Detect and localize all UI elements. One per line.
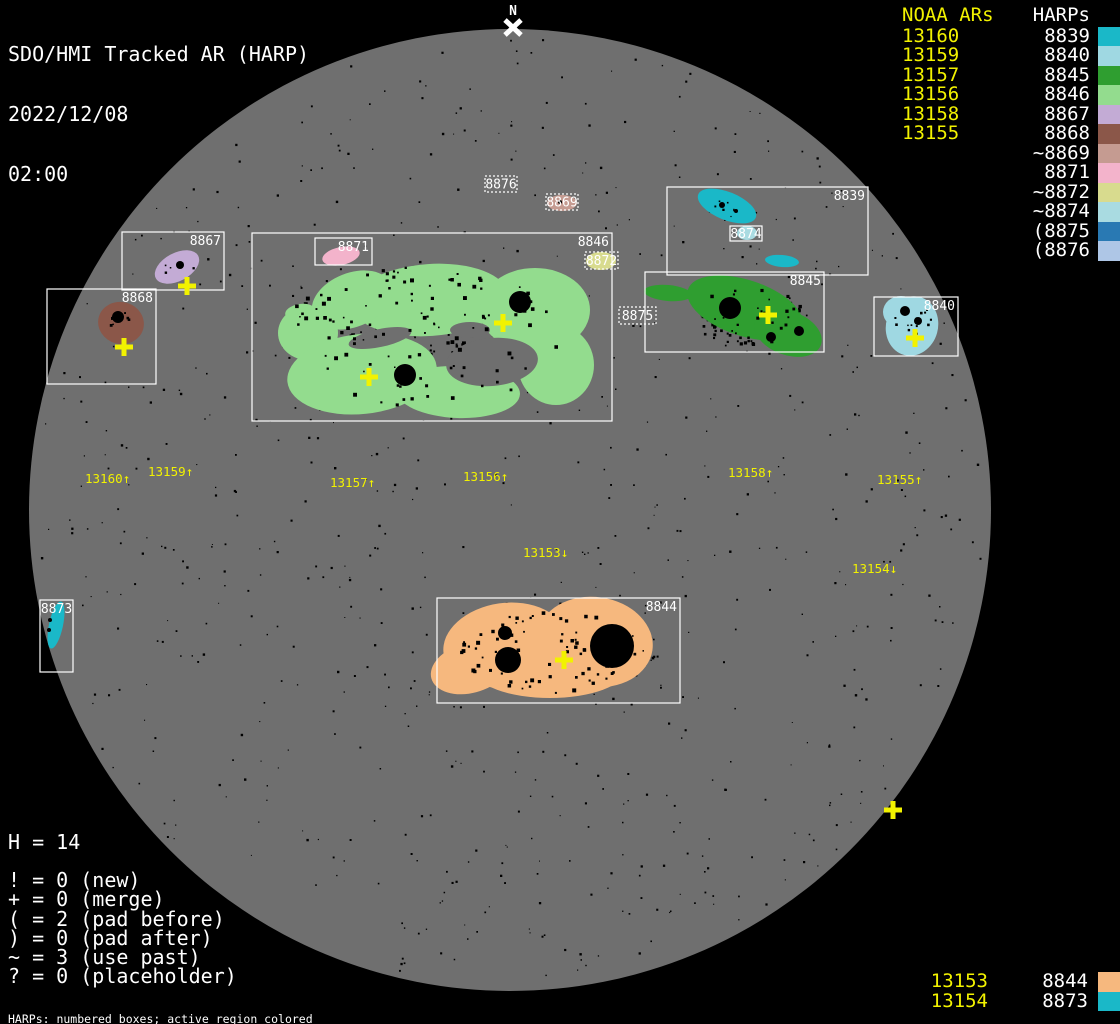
- harp-tag-label: 8872: [586, 254, 617, 269]
- footnote-block: HARPs: numbered boxes; active region col…: [8, 988, 410, 1024]
- legend-harp-number: 8868: [1000, 124, 1090, 144]
- legend-color-swatch: [1098, 27, 1120, 47]
- noaa-number-label: 13157↑: [330, 475, 375, 490]
- stats-line: ? = 0 (placeholder): [8, 967, 237, 986]
- legend-row-8868: 131558868: [900, 124, 1120, 144]
- legend-color-swatch: [1098, 183, 1120, 203]
- legend-noaa-number: 13156: [900, 85, 1000, 105]
- harp-box-label: 8844: [646, 600, 677, 615]
- north-label: N: [509, 4, 517, 19]
- harp-tag-label: 8875: [622, 309, 653, 324]
- harp-count-label: H = 14: [8, 830, 237, 854]
- north-marker: N: [505, 4, 521, 35]
- stats-lines: ! = 0 (new)+ = 0 (merge)( = 2 (pad befor…: [8, 871, 237, 987]
- legend-color-swatch: [1098, 972, 1120, 992]
- noaa-number-label: 13160↑: [85, 471, 130, 486]
- solar-harp-tracker-view: 8839884088448845884688678868887188738874…: [0, 0, 1120, 1024]
- legend-color-swatch: [1098, 202, 1120, 222]
- date-label: 2022/12/08: [8, 104, 309, 124]
- title-block: SDO/HMI Tracked AR (HARP) 2022/12/08 02:…: [8, 4, 309, 224]
- legend-noaa-number: 13154: [900, 992, 988, 1012]
- harp-tag-label: 8876: [485, 178, 516, 193]
- equator-legend: 131538844131548873: [900, 972, 1120, 1011]
- legend-rows: 1316088391315988401315788451315688461315…: [900, 27, 1120, 261]
- legend-color-swatch: [1098, 105, 1120, 125]
- harp-box-label: 8845: [790, 274, 821, 289]
- footnote-harps: HARPs: numbered boxes; active region col…: [8, 1013, 410, 1024]
- harp-tag-8876: 8876: [485, 176, 517, 193]
- legend-harp-number: 8840: [1000, 46, 1090, 66]
- noaa-number-label: 13158↑: [728, 465, 773, 480]
- legend-color-swatch: [1098, 124, 1120, 144]
- legend-noaa-number: 13153: [900, 972, 988, 992]
- legend-harp-number: 8871: [1000, 163, 1090, 183]
- harp-box-label: 8867: [190, 234, 221, 249]
- legend-color-swatch: [1098, 66, 1120, 86]
- legend-harp-number: 8873: [988, 992, 1088, 1012]
- legend-noaa-number: 13159: [900, 46, 1000, 66]
- legend-header-row: NOAA ARs HARPs: [900, 6, 1120, 26]
- harp-box-label: 8871: [338, 240, 369, 255]
- harp-tag-8872: 8872: [585, 252, 618, 269]
- legend-color-swatch: [1098, 241, 1120, 261]
- noaa-number-label: 13159↑: [148, 464, 193, 479]
- legend-color-swatch: [1098, 144, 1120, 164]
- harp-tag-8869: 8869: [546, 194, 578, 211]
- harp-tag-label: 8869: [546, 196, 577, 211]
- stats-block: H = 14 ! = 0 (new)+ = 0 (merge)( = 2 (pa…: [8, 830, 237, 987]
- harps-header: HARPs: [1000, 6, 1090, 26]
- harp-tag-8875: 8875: [619, 307, 656, 324]
- legend-harp-number: 8844: [988, 972, 1088, 992]
- legend-row-8876: (8876: [900, 241, 1120, 261]
- equator-legend-rows: 131538844131548873: [900, 972, 1120, 1011]
- harp-noaa-legend: NOAA ARs HARPs 1316088391315988401315788…: [900, 6, 1120, 261]
- legend-harp-number: (8876: [1000, 241, 1090, 261]
- legend-row-8840: 131598840: [900, 46, 1120, 66]
- legend-noaa-number: 13155: [900, 124, 1000, 144]
- equator-legend-row-8873: 131548873: [900, 992, 1120, 1012]
- legend-color-swatch: [1098, 222, 1120, 242]
- legend-harp-number: 8846: [1000, 85, 1090, 105]
- harp-box-label: 8868: [122, 291, 153, 306]
- legend-row-8846: 131568846: [900, 85, 1120, 105]
- legend-swatch-spacer: [1098, 6, 1120, 26]
- app-title: SDO/HMI Tracked AR (HARP): [8, 44, 309, 64]
- legend-harp-number: ~8874: [1000, 202, 1090, 222]
- legend-row-8871: 8871: [900, 163, 1120, 183]
- harp-box-label: 8839: [834, 189, 865, 204]
- legend-row-8874: ~8874: [900, 202, 1120, 222]
- harp-tag-label: 8874: [730, 227, 761, 242]
- legend-color-swatch: [1098, 992, 1120, 1012]
- noaa-number-label: 13153↓: [523, 545, 568, 560]
- harp-box-label: 8873: [41, 602, 72, 617]
- noaa-number-label: 13154↓: [852, 561, 897, 576]
- legend-color-swatch: [1098, 46, 1120, 66]
- harp-box-label: 8846: [578, 235, 609, 250]
- noaa-number-label: 13156↑: [463, 469, 508, 484]
- noaa-ars-header: NOAA ARs: [900, 6, 1000, 26]
- legend-color-swatch: [1098, 85, 1120, 105]
- legend-color-swatch: [1098, 163, 1120, 183]
- noaa-number-label: 13155↑: [877, 472, 922, 487]
- harp-tag-8874: 8874: [730, 226, 762, 242]
- equator-legend-row-8844: 131538844: [900, 972, 1120, 992]
- harp-box-label: 8840: [924, 299, 955, 314]
- time-label: 02:00: [8, 164, 309, 184]
